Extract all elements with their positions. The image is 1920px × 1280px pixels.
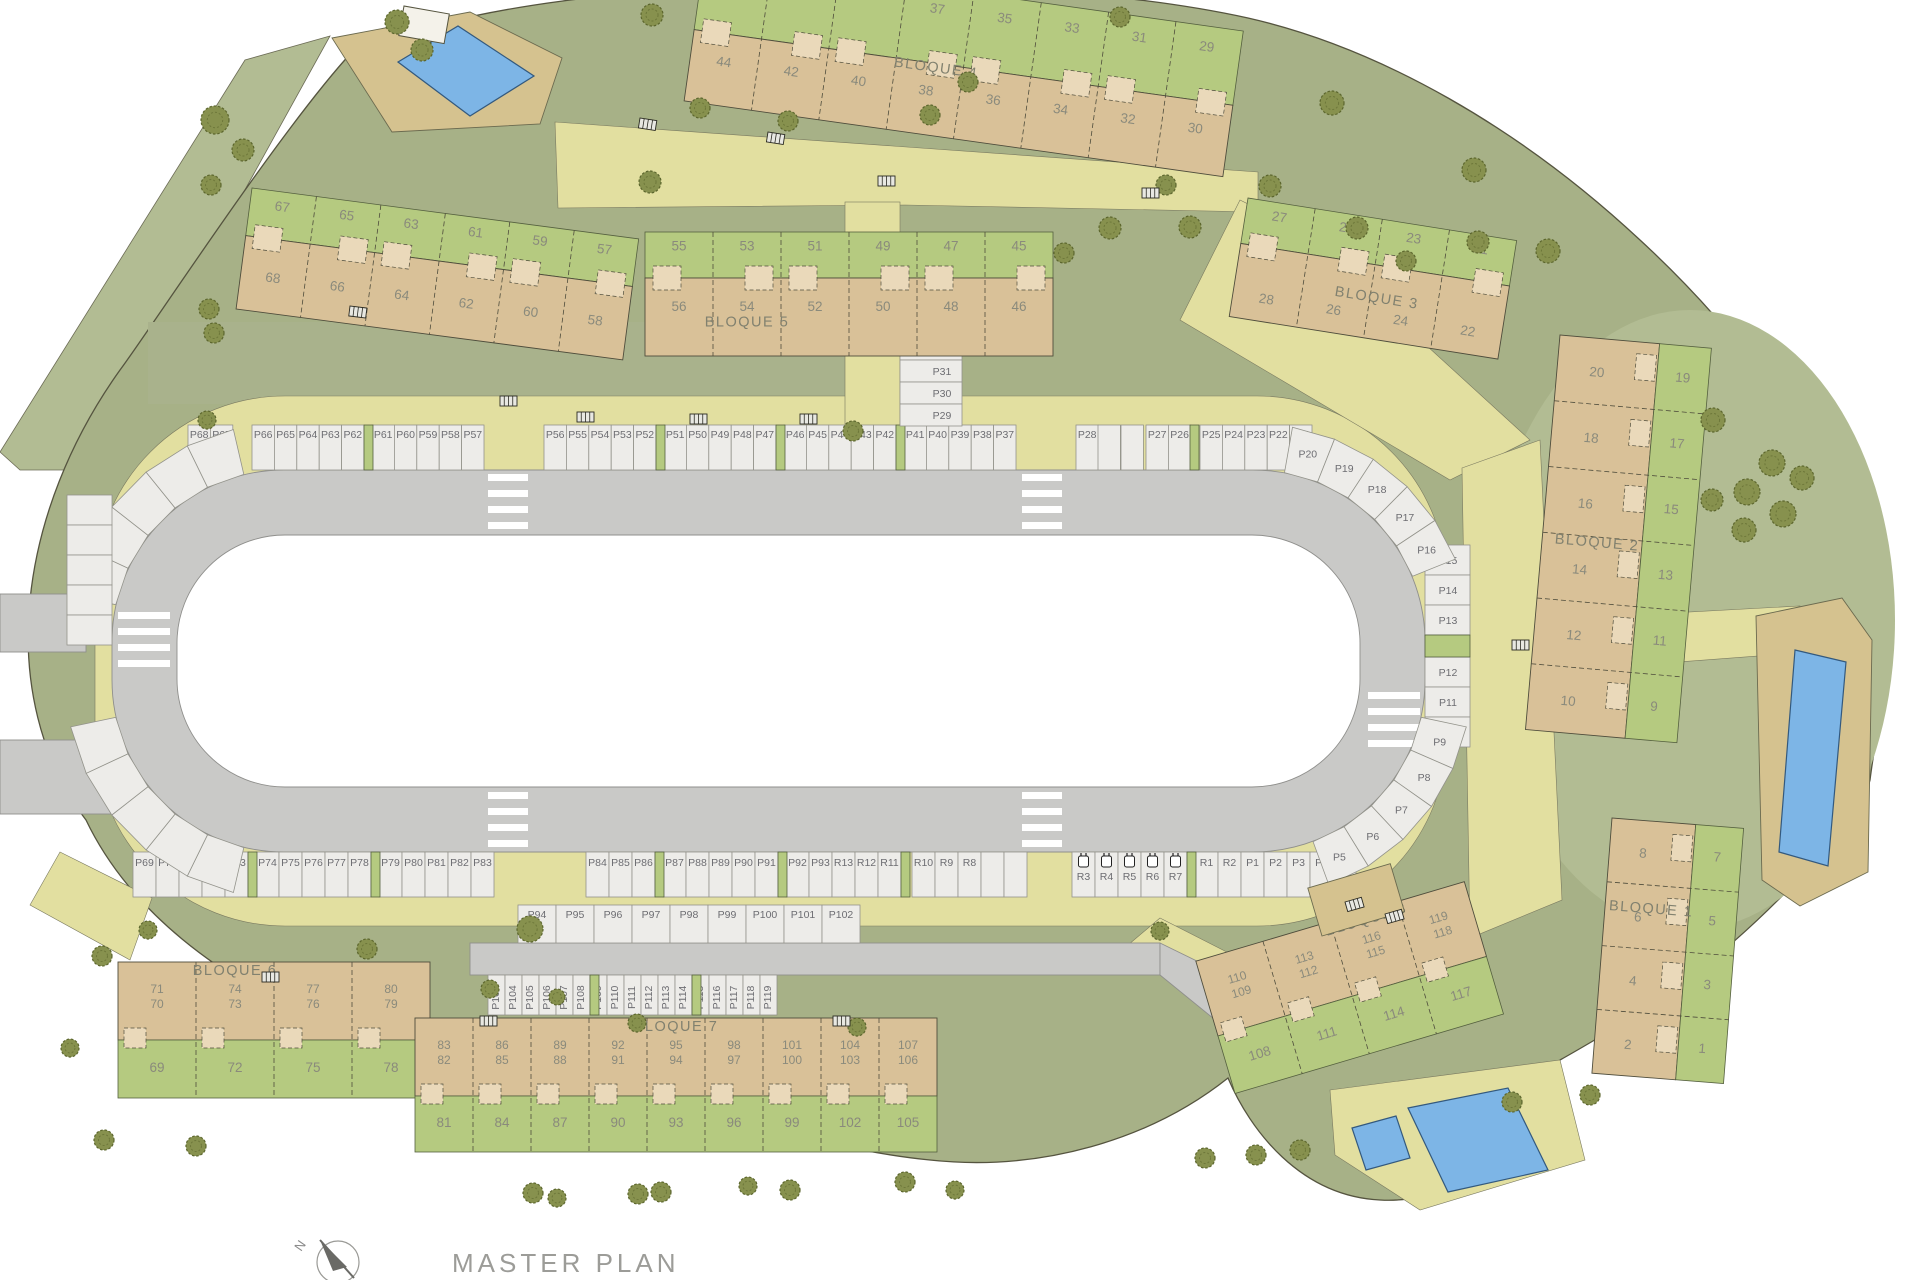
patio — [1472, 268, 1503, 296]
garden-9: 9 — [1650, 699, 1659, 715]
garden-75: 75 — [305, 1060, 320, 1075]
parking-label-P87: P87 — [665, 857, 684, 869]
garden-31: 31 — [1131, 29, 1148, 46]
tree-icon — [481, 980, 499, 998]
parking-label-P54: P54 — [591, 429, 610, 441]
tree-icon — [186, 1136, 206, 1156]
garden-7: 7 — [1713, 849, 1722, 865]
parking-label-P53: P53 — [613, 429, 632, 441]
unit-18: 18 — [1583, 430, 1599, 446]
tree-icon — [1462, 158, 1486, 182]
unit-58: 58 — [587, 312, 604, 329]
unit-85: 85 — [495, 1053, 509, 1067]
planter-divider — [371, 852, 380, 897]
patio — [124, 1028, 146, 1048]
block-bloque-1: 87654321BLOQUE 1 — [1592, 818, 1744, 1084]
parking-label-P11: P11 — [1439, 697, 1457, 709]
patio — [1017, 266, 1045, 290]
patio — [1061, 69, 1092, 97]
garden-65: 65 — [338, 207, 355, 224]
tree-icon — [357, 939, 377, 959]
garden-33: 33 — [1064, 19, 1081, 36]
parking-label-P47: P47 — [755, 429, 774, 441]
garden-99: 99 — [784, 1115, 799, 1130]
garden-93: 93 — [668, 1115, 683, 1130]
unit-92: 92 — [611, 1038, 625, 1052]
parking-label-P23: P23 — [1247, 429, 1266, 441]
parking-label-P50: P50 — [688, 429, 707, 441]
tree-icon — [199, 299, 219, 319]
parking-label-P39: P39 — [951, 429, 970, 441]
unit-60: 60 — [522, 303, 539, 320]
parking-label-P95: P95 — [566, 909, 585, 921]
planter-divider — [364, 425, 373, 470]
garden-11: 11 — [1652, 633, 1667, 649]
unit-8: 8 — [1639, 845, 1648, 861]
parking-stall-empty — [1004, 852, 1027, 897]
tree-icon — [843, 421, 863, 441]
unit-97: 97 — [727, 1053, 741, 1067]
tree-icon — [1195, 1148, 1215, 1168]
parking-stall-P29 — [900, 404, 962, 426]
parking-label-P90: P90 — [734, 857, 753, 869]
parking-label-P25: P25 — [1202, 429, 1221, 441]
garden-15: 15 — [1663, 501, 1679, 517]
patio — [337, 236, 368, 263]
patio — [1629, 419, 1651, 447]
site-plan-drawing: P68P67P66P65P64P63P62P61P60P59P58P57P56P… — [0, 0, 1920, 1280]
parking-label-P108: P108 — [575, 985, 587, 1010]
tree-icon — [204, 323, 224, 343]
planter-divider — [590, 975, 599, 1015]
patio — [769, 1084, 791, 1104]
planter-divider — [778, 852, 787, 897]
garden-49: 49 — [875, 238, 890, 253]
parking-label-R6: R6 — [1146, 871, 1160, 883]
parking-stall-P30 — [900, 382, 962, 404]
parking-label-P37: P37 — [995, 429, 1014, 441]
garden-45: 45 — [1011, 238, 1026, 253]
stairs-icon — [1512, 640, 1529, 650]
garden-5: 5 — [1708, 913, 1717, 929]
parking-label-P65: P65 — [276, 429, 295, 441]
tree-icon — [1054, 243, 1074, 263]
parking-label-P99: P99 — [718, 909, 737, 921]
tree-icon — [1151, 922, 1169, 940]
planter-divider — [776, 425, 785, 470]
planter-divider — [656, 425, 665, 470]
tree-icon — [1701, 489, 1723, 511]
unit-86: 86 — [495, 1038, 509, 1052]
unit-76: 76 — [306, 997, 320, 1011]
tree-icon — [549, 989, 565, 1005]
garden-3: 3 — [1703, 977, 1712, 993]
unit-74: 74 — [228, 982, 242, 996]
parking-stall-empty — [1098, 425, 1120, 470]
parking-label-R4: R4 — [1100, 871, 1114, 883]
parking-label-P110: P110 — [609, 985, 621, 1009]
patio — [789, 266, 817, 290]
parking-label-P31: P31 — [933, 366, 952, 378]
parking-label-P24: P24 — [1224, 429, 1243, 441]
gardens-bloque-5 — [645, 232, 1053, 278]
patio — [653, 1084, 675, 1104]
garden-29: 29 — [1198, 38, 1215, 55]
parking-label-P83: P83 — [473, 857, 492, 869]
parking-label-P51: P51 — [666, 429, 685, 441]
tree-icon — [1502, 1092, 1522, 1112]
unit-54: 54 — [739, 299, 755, 314]
patio — [595, 1084, 617, 1104]
parking-label-P76: P76 — [304, 857, 323, 869]
block-bloque-5: 565452504846555351494745BLOQUE 5 — [645, 232, 1053, 356]
unit-64: 64 — [393, 286, 410, 303]
parking-label-P8: P8 — [1418, 772, 1431, 784]
parking-label-P48: P48 — [733, 429, 752, 441]
stairs-icon — [878, 176, 895, 186]
tree-icon — [1536, 239, 1560, 263]
parking-label-P14: P14 — [1439, 585, 1458, 597]
garden-84: 84 — [494, 1115, 510, 1130]
unit-82: 82 — [437, 1053, 451, 1067]
tree-icon — [385, 10, 409, 34]
unit-24: 24 — [1392, 312, 1410, 329]
parking-label-P18: P18 — [1368, 484, 1387, 496]
tree-icon — [780, 1180, 800, 1200]
tree-icon — [639, 171, 661, 193]
garden-1: 1 — [1698, 1041, 1707, 1057]
garden-72: 72 — [227, 1060, 242, 1075]
parking-stall-empty — [67, 585, 112, 615]
unit-107: 107 — [898, 1038, 918, 1052]
garden-59: 59 — [532, 232, 549, 249]
planter-divider — [896, 425, 905, 470]
patio — [1617, 551, 1639, 579]
parking-label-R7: R7 — [1169, 871, 1183, 883]
tree-icon — [1734, 479, 1760, 505]
parking-label-P100: P100 — [753, 909, 778, 921]
parking-label-P69: P69 — [135, 857, 154, 869]
parking-stall-empty — [67, 495, 112, 525]
stairs-icon — [262, 972, 279, 982]
south-parking-aisle — [470, 943, 1160, 975]
parking-label-P63: P63 — [321, 429, 340, 441]
title-block: MASTER PLAN N — [291, 1237, 679, 1280]
garden-17: 17 — [1669, 435, 1685, 451]
garden-53: 53 — [739, 238, 754, 253]
tree-icon — [920, 105, 940, 125]
unit-95: 95 — [669, 1038, 683, 1052]
parking-label-P77: P77 — [327, 857, 346, 869]
parking-label-P28: P28 — [1078, 429, 1097, 441]
parking-label-P98: P98 — [680, 909, 699, 921]
plan-title: MASTER PLAN — [452, 1248, 680, 1278]
patio — [421, 1084, 443, 1104]
tree-icon — [198, 411, 216, 429]
parking-label-P22: P22 — [1269, 429, 1288, 441]
stairs-icon — [833, 1016, 850, 1026]
parking-label-P88: P88 — [688, 857, 707, 869]
patio — [595, 270, 626, 297]
garden-57: 57 — [596, 241, 613, 258]
tree-icon — [92, 946, 112, 966]
unit-80: 80 — [384, 982, 398, 996]
unit-100: 100 — [782, 1053, 802, 1067]
garden-102: 102 — [839, 1115, 862, 1130]
garden-90: 90 — [610, 1115, 625, 1130]
parking-label-P58: P58 — [441, 429, 460, 441]
stairs-icon — [1142, 188, 1159, 198]
block-label-bloque-5: BLOQUE 5 — [705, 314, 790, 330]
unit-30: 30 — [1187, 120, 1204, 137]
tree-icon — [1290, 1140, 1310, 1160]
unit-88: 88 — [553, 1053, 567, 1067]
parking-label-P75: P75 — [281, 857, 300, 869]
parking-label-R2: R2 — [1223, 857, 1237, 869]
tree-icon — [411, 39, 433, 61]
unit-101: 101 — [782, 1038, 802, 1052]
tree-icon — [1346, 217, 1368, 239]
tree-icon — [1259, 175, 1281, 197]
patio — [280, 1028, 302, 1048]
parking-label-P102: P102 — [829, 909, 854, 921]
unit-89: 89 — [553, 1038, 567, 1052]
tree-icon — [1580, 1085, 1600, 1105]
central-island — [177, 535, 1360, 787]
tree-icon — [651, 1182, 671, 1202]
garden-35: 35 — [996, 10, 1013, 27]
parking-label-R5: R5 — [1123, 871, 1137, 883]
planter-divider — [901, 852, 910, 897]
parking-label-P78: P78 — [350, 857, 369, 869]
parking-label-R11: R11 — [880, 857, 899, 869]
parking-label-P30: P30 — [933, 388, 952, 400]
parking-label-P79: P79 — [381, 857, 400, 869]
parking-stall-empty — [67, 615, 112, 645]
parking-label-P97: P97 — [642, 909, 661, 921]
tree-icon — [139, 921, 157, 939]
unit-10: 10 — [1560, 693, 1576, 709]
tree-icon — [1179, 216, 1201, 238]
unit-94: 94 — [669, 1053, 683, 1067]
patio — [381, 242, 412, 269]
patio — [1623, 485, 1645, 513]
parking-label-P104: P104 — [507, 985, 519, 1010]
unit-46: 46 — [1011, 299, 1026, 314]
planter-divider — [248, 852, 257, 897]
unit-26: 26 — [1325, 301, 1342, 318]
unit-34: 34 — [1052, 101, 1069, 118]
parking-label-R3: R3 — [1077, 871, 1091, 883]
parking-label-P5: P5 — [1333, 852, 1346, 864]
parking-label-P20: P20 — [1298, 448, 1317, 460]
tree-icon — [895, 1172, 915, 1192]
unit-44: 44 — [715, 53, 732, 70]
patio — [1338, 247, 1369, 275]
parking-label-P17: P17 — [1396, 512, 1415, 524]
parking-label-P117: P117 — [728, 985, 740, 1009]
parking-label-P13: P13 — [1439, 615, 1458, 627]
parking-label-P41: P41 — [906, 429, 925, 441]
parking-label-P16: P16 — [1417, 545, 1436, 557]
parking-label-P61: P61 — [374, 429, 393, 441]
patio — [1656, 1026, 1678, 1053]
unit-38: 38 — [917, 82, 934, 99]
parking-stall-P31 — [900, 360, 962, 382]
parking-label-P49: P49 — [711, 429, 730, 441]
tree-icon — [523, 1183, 543, 1203]
patio — [466, 253, 497, 280]
unit-66: 66 — [329, 278, 346, 295]
tree-icon — [1246, 1145, 1266, 1165]
tree-icon — [1770, 501, 1796, 527]
tree-icon — [94, 1130, 114, 1150]
parking-label-P113: P113 — [660, 985, 672, 1009]
parking-label-R1: R1 — [1200, 857, 1214, 869]
parking-label-P74: P74 — [258, 857, 277, 869]
master-plan-page: P68P67P66P65P64P63P62P61P60P59P58P57P56P… — [0, 0, 1920, 1280]
patio — [1671, 834, 1693, 861]
parking-label-P1: P1 — [1246, 857, 1259, 869]
garden-23: 23 — [1405, 230, 1422, 247]
unit-103: 103 — [840, 1053, 860, 1067]
patio — [925, 266, 953, 290]
tree-icon — [201, 106, 229, 134]
tree-icon — [958, 72, 978, 92]
unit-12: 12 — [1566, 627, 1582, 643]
parking-label-P85: P85 — [611, 857, 630, 869]
parking-label-P6: P6 — [1366, 831, 1379, 843]
garden-67: 67 — [274, 198, 291, 215]
tree-icon — [517, 916, 543, 942]
tree-icon — [61, 1039, 79, 1057]
unit-73: 73 — [228, 997, 242, 1011]
parking-label-P59: P59 — [419, 429, 438, 441]
tree-icon — [946, 1181, 964, 1199]
unit-83: 83 — [437, 1038, 451, 1052]
planter-divider — [1190, 425, 1199, 470]
patio — [1611, 617, 1633, 645]
unit-68: 68 — [265, 270, 282, 287]
patio — [835, 38, 866, 66]
patio — [711, 1084, 733, 1104]
tree-icon — [690, 98, 710, 118]
parking-label-R8: R8 — [963, 857, 977, 869]
parking-label-P112: P112 — [643, 985, 655, 1009]
unit-62: 62 — [458, 295, 475, 312]
parking-label-P93: P93 — [811, 857, 830, 869]
planter-divider — [692, 975, 701, 1015]
parking-label-P52: P52 — [635, 429, 654, 441]
parking-label-R9: R9 — [940, 857, 954, 869]
unit-2: 2 — [1624, 1037, 1633, 1053]
unit-104: 104 — [840, 1038, 860, 1052]
tree-icon — [848, 1018, 866, 1036]
unit-52: 52 — [807, 299, 822, 314]
unit-14: 14 — [1572, 561, 1589, 577]
tree-icon — [1759, 450, 1785, 476]
tree-icon — [641, 4, 663, 26]
tree-icon — [1732, 518, 1756, 542]
garden-37: 37 — [929, 0, 946, 17]
parking-label-P91: P91 — [757, 857, 776, 869]
parking-label-P84: P84 — [588, 857, 607, 869]
parking-label-R13: R13 — [834, 857, 853, 869]
tree-icon — [548, 1189, 566, 1207]
garden-19: 19 — [1675, 370, 1691, 386]
patio — [358, 1028, 380, 1048]
tree-icon — [628, 1184, 648, 1204]
unit-22: 22 — [1459, 322, 1476, 339]
parking-label-P12: P12 — [1439, 667, 1458, 679]
garden-51: 51 — [807, 238, 822, 253]
tree-icon — [778, 111, 798, 131]
parking-label-P26: P26 — [1170, 429, 1189, 441]
unit-98: 98 — [727, 1038, 741, 1052]
tree-icon — [1467, 231, 1489, 253]
north-label: N — [291, 1237, 309, 1253]
parking-label-P80: P80 — [404, 857, 423, 869]
garden-63: 63 — [403, 215, 420, 232]
unit-91: 91 — [611, 1053, 625, 1067]
parking-label-P2: P2 — [1269, 857, 1282, 869]
stairs-icon — [349, 306, 367, 318]
unit-50: 50 — [875, 299, 890, 314]
patio — [252, 225, 283, 252]
parking-label-P101: P101 — [791, 909, 816, 921]
parking-label-P27: P27 — [1148, 429, 1167, 441]
unit-77: 77 — [306, 982, 320, 996]
patio — [700, 19, 731, 47]
garden-61: 61 — [467, 224, 484, 241]
parking-stall-empty — [67, 555, 112, 585]
parking-stall-empty — [67, 525, 112, 555]
parking-label-P96: P96 — [604, 909, 623, 921]
parking-label-P40: P40 — [928, 429, 947, 441]
parking-label-P46: P46 — [786, 429, 805, 441]
block-label-bloque-7: BLOQUE 7 — [634, 1019, 719, 1035]
planter-divider — [1187, 852, 1196, 897]
garden-55: 55 — [671, 238, 686, 253]
patio — [1661, 962, 1683, 989]
parking-label-P89: P89 — [711, 857, 730, 869]
parking-label-P55: P55 — [568, 429, 587, 441]
tree-icon — [739, 1177, 757, 1195]
tree-icon — [1110, 7, 1130, 27]
tree-icon — [628, 1014, 646, 1032]
parking-label-P119: P119 — [762, 985, 774, 1009]
stairs-icon — [766, 132, 784, 145]
patio — [745, 266, 773, 290]
parking-label-P111: P111 — [626, 986, 638, 1009]
patio — [479, 1084, 501, 1104]
planter-divider — [1425, 635, 1470, 657]
unit-48: 48 — [943, 299, 958, 314]
unit-20: 20 — [1589, 364, 1605, 380]
parking-label-R12: R12 — [857, 857, 876, 869]
patio — [1634, 354, 1656, 382]
parking-label-P66: P66 — [254, 429, 273, 441]
parking-label-P56: P56 — [546, 429, 565, 441]
parking-label-P62: P62 — [343, 429, 362, 441]
tree-icon — [1701, 408, 1725, 432]
planter-divider — [655, 852, 664, 897]
tree-icon — [1790, 466, 1814, 490]
unit-79: 79 — [384, 997, 398, 1011]
parking-label-P114: P114 — [677, 985, 689, 1009]
unit-32: 32 — [1119, 110, 1136, 127]
parking-label-P3: P3 — [1292, 857, 1305, 869]
